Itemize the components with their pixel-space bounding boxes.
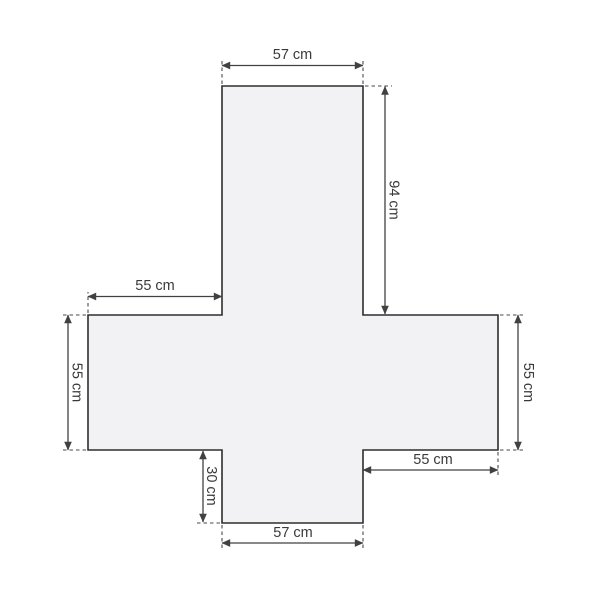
dimension-label-top-arm-height: 94 cm [386, 180, 402, 220]
dimension-right-side-height: 55 cm [500, 315, 536, 450]
dimension-diagram: 57 cm 94 cm 55 cm 55 cm 55 cm [0, 0, 600, 600]
dimension-bottom-right-width: 55 cm [363, 452, 498, 475]
dimension-label-top-width: 57 cm [273, 47, 313, 63]
dimension-label-bottom-width: 57 cm [273, 525, 313, 541]
dimension-diagram-page: 57 cm 94 cm 55 cm 55 cm 55 cm [0, 0, 600, 600]
dimension-label-bottom-arm-height: 30 cm [203, 466, 219, 506]
dimension-left-side-height: 55 cm [61, 315, 86, 450]
dimension-bottom-arm-height: 30 cm [195, 451, 220, 523]
dimension-label-left-arm-width: 55 cm [135, 278, 175, 294]
dimension-bottom-width: 57 cm [222, 525, 363, 548]
dimension-top-arm-height: 94 cm [365, 86, 402, 314]
dimension-label-left-side-height: 55 cm [69, 363, 85, 403]
dimension-top-width: 57 cm [222, 47, 363, 84]
dimension-left-arm-width: 55 cm [88, 278, 222, 313]
dimension-label-right-side-height: 55 cm [520, 363, 536, 403]
dimension-label-bottom-right-width: 55 cm [413, 452, 453, 468]
